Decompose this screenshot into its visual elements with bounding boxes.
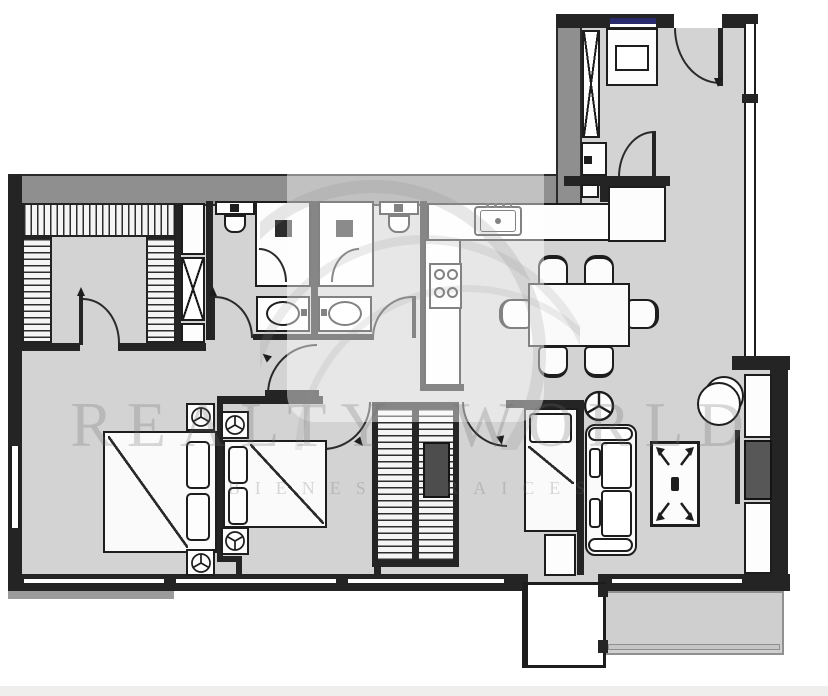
south-window-1 <box>24 579 164 583</box>
closet-door-arrow <box>77 287 85 296</box>
laundry-window-glass <box>610 24 656 27</box>
master-pillow-2 <box>186 493 210 541</box>
laundry-shelf-small <box>581 184 599 198</box>
watermark-brand: REALTY WORLD <box>0 388 828 462</box>
dining-chair-south-2 <box>584 346 614 378</box>
bedroom3-foot-desk <box>544 534 576 576</box>
floor-plan: REALTY WORLD BIENES RAICES <box>0 0 828 696</box>
closet-south-wall-right <box>118 343 206 351</box>
balcony-railing <box>608 644 780 650</box>
closet-south-wall-left <box>22 343 80 351</box>
south-window-3 <box>348 579 504 583</box>
washer-drum <box>615 45 649 71</box>
east-window-wall <box>744 18 756 358</box>
west-exterior-wall <box>8 174 22 591</box>
watermark-tagline: BIENES RAICES <box>0 478 828 499</box>
wardrobe-south-wall <box>372 560 459 567</box>
page-bottom-strip <box>0 686 828 696</box>
living-south-window <box>612 579 742 583</box>
closet-shelf-left <box>22 237 52 343</box>
closet-shelf-right <box>146 237 176 343</box>
entry-door-arrow <box>714 78 722 87</box>
closet-shelf-top <box>22 203 176 237</box>
duct-shaft <box>181 257 205 321</box>
toilet-a-tick <box>230 204 239 212</box>
balcony-ledge <box>522 582 606 668</box>
ceiling-lamp-icon <box>190 552 212 574</box>
ledge-jamb-top <box>598 584 608 597</box>
south-sill <box>8 591 174 599</box>
south-window-2 <box>176 579 336 583</box>
master-nightstand-2 <box>186 549 215 576</box>
bath-a-door-arrow <box>209 287 217 296</box>
east-wall-cap-top <box>742 14 758 24</box>
shaft-cabinet-bottom <box>181 323 205 343</box>
tv-niche-shelf-bottom <box>744 502 772 574</box>
bedroom2-nightstand-2 <box>221 527 249 555</box>
sofa-pillow-2 <box>589 498 601 528</box>
laundry-sink-faucet <box>584 156 592 164</box>
sofa-armrest-bottom <box>588 538 633 552</box>
ceiling-lamp-icon <box>224 530 246 552</box>
bedroom2-south-jog-v <box>236 556 242 576</box>
dining-chair-east <box>627 299 659 329</box>
wardrobe-south-stub <box>374 565 381 576</box>
toilet-a-bowl <box>224 215 246 233</box>
shaft-cabinet-top <box>181 203 205 255</box>
east-wall-cap-mid <box>742 94 758 103</box>
fridge <box>608 186 666 242</box>
laundry-tall-cabinet <box>582 30 600 138</box>
laundry-south-jog <box>600 186 608 202</box>
ledge-jamb-bottom <box>598 640 608 653</box>
